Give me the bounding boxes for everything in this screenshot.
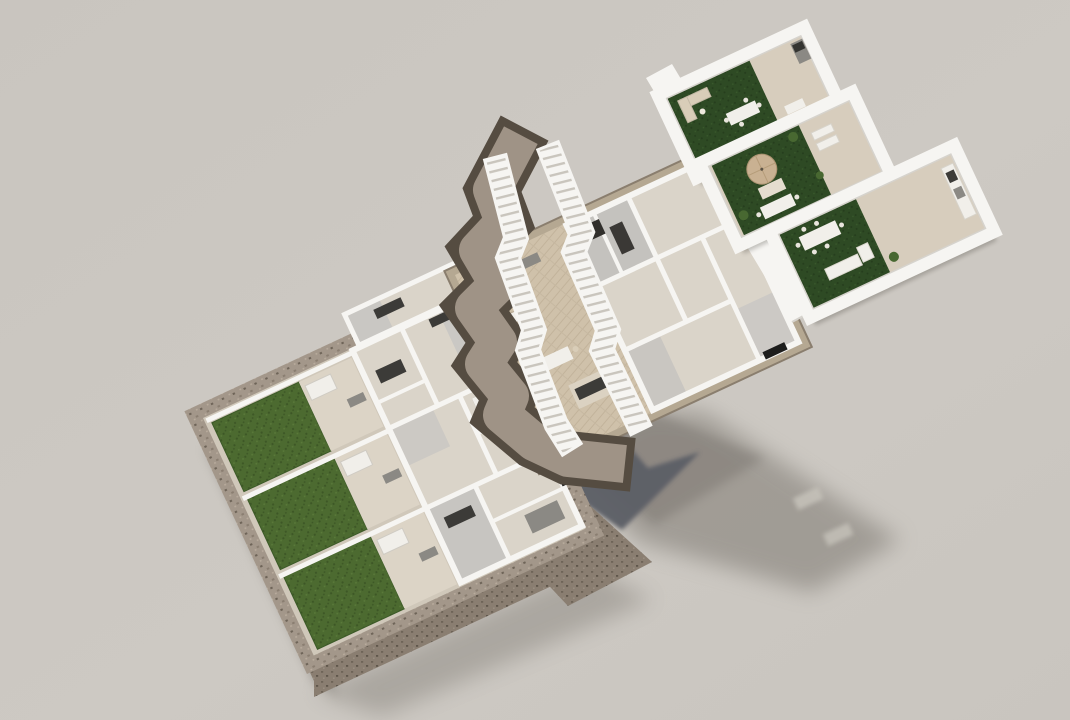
architecture-render: Exploded 3D floor-plan render of a three… <box>0 0 1070 720</box>
